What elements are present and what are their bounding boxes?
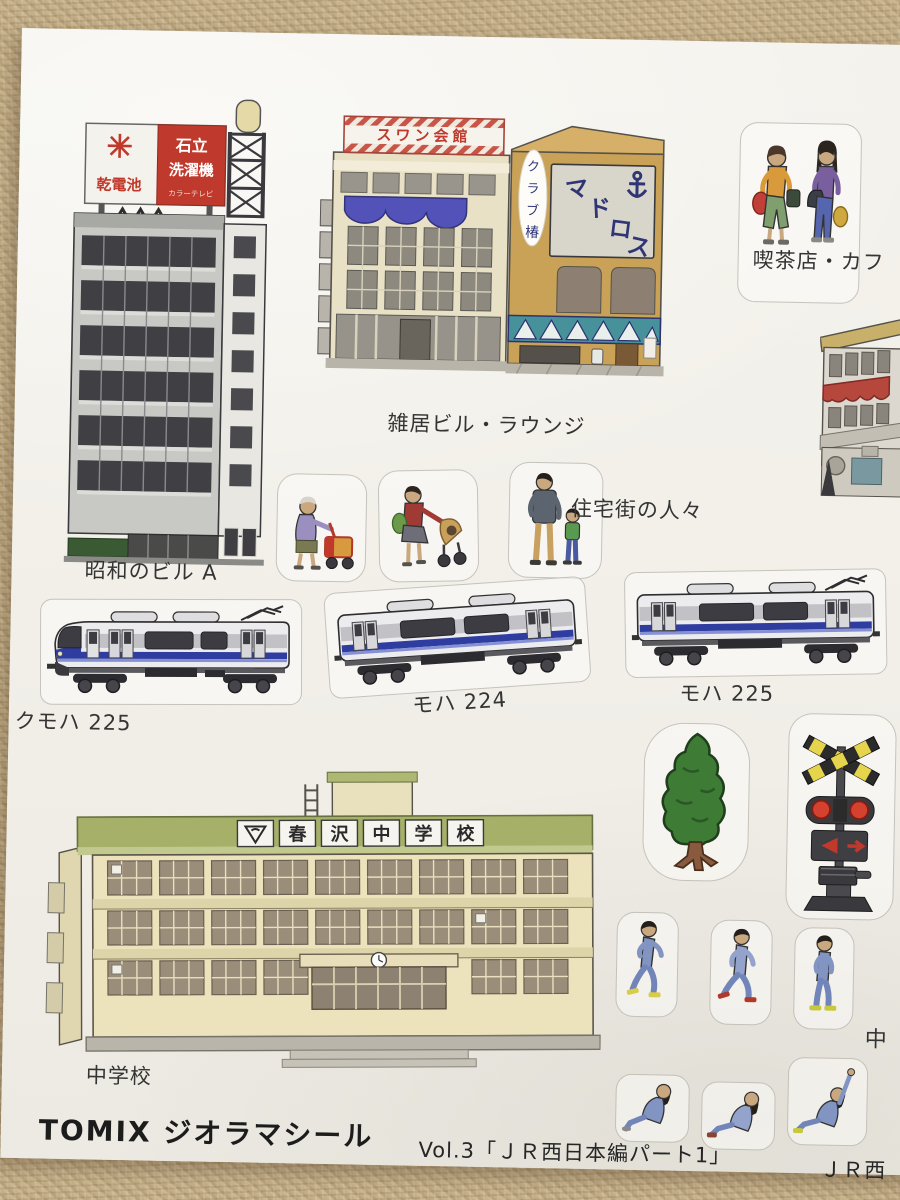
madoros-char: ド bbox=[587, 196, 611, 223]
rooftop-tower bbox=[226, 100, 266, 217]
bogie bbox=[73, 674, 127, 693]
lounge-window bbox=[611, 267, 656, 314]
sticker-cafe-people bbox=[737, 122, 862, 304]
sitter-illustration bbox=[792, 1062, 863, 1141]
school-panel-char: 中 bbox=[372, 823, 390, 845]
sticker-walker-1 bbox=[615, 912, 679, 1018]
woman-orange bbox=[752, 145, 801, 245]
swan-hall-sign: スワン会館 bbox=[344, 116, 505, 155]
label-moha224: モハ 224 bbox=[411, 683, 508, 719]
walker-illustration bbox=[620, 917, 674, 1013]
direction-sign bbox=[811, 830, 868, 861]
sticker-grandma-cart bbox=[275, 473, 367, 583]
bogie bbox=[804, 644, 858, 663]
school-panel-char: 沢 bbox=[330, 823, 349, 845]
madoros-char: マ bbox=[564, 175, 591, 204]
battery-sunburst-icon bbox=[108, 134, 132, 158]
school-main: 春 沢 中 学 校 bbox=[77, 771, 600, 1068]
roof-ladder bbox=[305, 784, 317, 818]
swan-hall-sign-text: スワン会館 bbox=[376, 126, 471, 146]
sticker-sheet: 乾電池 石立 洗濯機 カラーテレビ bbox=[0, 28, 900, 1175]
club-sign-char: ラ bbox=[526, 182, 539, 197]
club-sign-char: ク bbox=[527, 160, 540, 175]
lounge-window bbox=[557, 266, 602, 313]
sticker-sitter-3 bbox=[787, 1057, 869, 1147]
lounge-buildings-illustration: スワン会館 bbox=[315, 104, 676, 411]
bogie bbox=[223, 674, 277, 693]
window-row-3f bbox=[108, 859, 568, 895]
club-sign-char: 椿 bbox=[525, 225, 539, 241]
mechanism-box bbox=[804, 866, 873, 911]
grandma-cart-illustration bbox=[281, 478, 363, 578]
label-showa-building: 昭和のビル A bbox=[84, 554, 218, 587]
train-moha224-illustration bbox=[328, 581, 586, 694]
sticker-mother-stroller bbox=[378, 469, 480, 583]
sitter-illustration bbox=[620, 1079, 685, 1138]
label-cafe-people: 喫茶店・カフ bbox=[752, 244, 885, 277]
window-row-2f bbox=[108, 909, 568, 945]
club-sign-char: ブ bbox=[526, 203, 539, 219]
bogie bbox=[654, 646, 708, 665]
footer-brand-title: TOMIX ジオラマシール bbox=[38, 1109, 373, 1155]
bogie bbox=[357, 663, 412, 685]
label-residential-people: 住宅街の人々 bbox=[571, 493, 704, 526]
ac-unit bbox=[862, 446, 878, 456]
train-moha225-illustration bbox=[629, 573, 882, 673]
sticker-walker-3 bbox=[793, 927, 855, 1030]
sticker-train-moha224 bbox=[323, 576, 592, 700]
label-kumoha225: クモハ 225 bbox=[14, 705, 131, 737]
sticker-train-moha225 bbox=[624, 568, 888, 678]
pantograph bbox=[825, 575, 867, 590]
school-illustration: 春 沢 中 学 校 bbox=[35, 753, 606, 1079]
madoros-building: ク ラ ブ 椿 マ ド ロ ス bbox=[505, 125, 668, 376]
warning-lights bbox=[806, 796, 875, 824]
entrance bbox=[300, 952, 458, 1009]
school-panel-char: 校 bbox=[456, 823, 475, 845]
sticker-walker-2 bbox=[709, 919, 773, 1025]
woman-purple bbox=[807, 140, 849, 243]
walker-illustration bbox=[714, 924, 768, 1020]
sticker-showa-building: 乾電池 石立 洗濯機 カラーテレビ bbox=[52, 93, 281, 567]
label-moha225: モハ 225 bbox=[679, 678, 774, 708]
crossing-signal-illustration bbox=[790, 718, 892, 916]
showa-building-illustration: 乾電池 石立 洗濯機 カラーテレビ bbox=[52, 93, 281, 567]
photo-frame: 乾電池 石立 洗濯機 カラーテレビ bbox=[0, 0, 900, 1200]
swan-hall-building: スワン会館 bbox=[318, 116, 513, 372]
school-panel-char: 春 bbox=[288, 823, 307, 845]
blue-awning bbox=[344, 196, 467, 228]
school-panel-char: 学 bbox=[414, 823, 432, 845]
building-body bbox=[68, 213, 224, 536]
train-kumoha225-illustration bbox=[45, 604, 297, 700]
sitter-illustration bbox=[706, 1086, 771, 1145]
pantograph bbox=[241, 606, 283, 620]
sticker-train-kumoha225 bbox=[40, 599, 302, 705]
teal-truss-band bbox=[508, 315, 660, 344]
footer-volume-title: Vol.3「ＪＲ西日本編パート1」 bbox=[418, 1134, 731, 1170]
maker-sign-small: カラーテレビ bbox=[168, 189, 213, 199]
annex-tower bbox=[218, 224, 266, 537]
mother-stroller-illustration bbox=[383, 474, 475, 577]
tree-illustration bbox=[647, 727, 746, 877]
sticker-crossing-signal bbox=[785, 713, 897, 921]
sticker-lounge-buildings: スワン会館 bbox=[315, 104, 676, 411]
sticker-street-building-partial bbox=[817, 307, 900, 504]
sticker-school: 春 沢 中 学 校 bbox=[35, 753, 606, 1079]
label-lounge-buildings: 雑居ビル・ラウンジ bbox=[387, 407, 586, 441]
bogie bbox=[507, 652, 562, 674]
battery-sign-text: 乾電池 bbox=[96, 175, 141, 194]
trash-bin bbox=[592, 349, 603, 364]
sticker-tree bbox=[642, 722, 751, 882]
maker-sign-line2: 洗濯機 bbox=[169, 161, 214, 180]
madoros-sign: マ ド ロ ス bbox=[550, 164, 656, 263]
label-school: 中学校 bbox=[86, 1059, 153, 1090]
rooftop-sign: 乾電池 石立 洗濯機 カラーテレビ bbox=[84, 123, 226, 216]
walker-illustration bbox=[798, 932, 850, 1025]
maker-sign-line1: 石立 bbox=[175, 136, 208, 156]
footer-volume-cutoff: ＪＲ西 bbox=[820, 1154, 887, 1185]
label-right-cutoff: 中 bbox=[864, 1021, 888, 1053]
street-building-illustration bbox=[817, 307, 900, 504]
sticker-sitter-1 bbox=[615, 1074, 690, 1143]
